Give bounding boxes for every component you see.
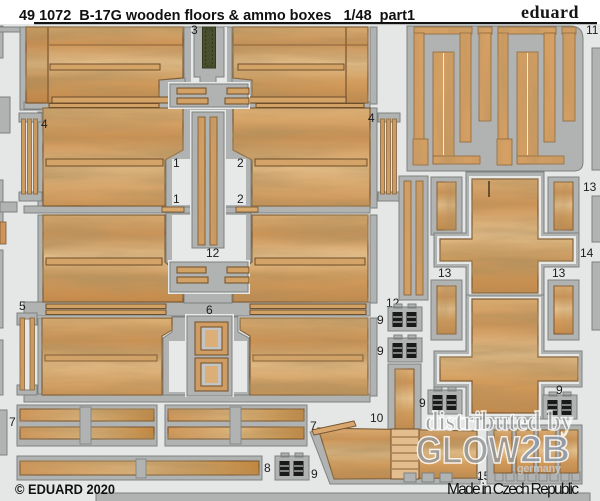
- svg-text:7: 7: [9, 415, 16, 429]
- svg-text:12: 12: [206, 246, 220, 260]
- svg-text:14: 14: [580, 246, 594, 260]
- svg-text:13: 13: [583, 180, 597, 194]
- svg-text:1: 1: [173, 192, 180, 206]
- svg-text:2: 2: [237, 192, 244, 206]
- svg-text:4: 4: [368, 111, 375, 125]
- svg-text:eduard: eduard: [521, 2, 579, 22]
- svg-text:10: 10: [370, 411, 384, 425]
- svg-text:13: 13: [552, 266, 566, 280]
- svg-text:9: 9: [311, 467, 318, 481]
- svg-text:8: 8: [264, 461, 271, 475]
- svg-text:9: 9: [556, 383, 563, 397]
- svg-text:© EDUARD 2020: © EDUARD 2020: [15, 481, 115, 497]
- svg-text:GLOW: GLOW: [416, 430, 520, 472]
- svg-text:13: 13: [438, 266, 452, 280]
- svg-text:2: 2: [237, 156, 244, 170]
- svg-text:germany: germany: [517, 463, 562, 475]
- svg-text:7: 7: [310, 419, 317, 433]
- svg-text:3: 3: [191, 23, 198, 37]
- svg-text:5: 5: [19, 299, 26, 313]
- svg-text:1: 1: [173, 156, 180, 170]
- svg-text:4: 4: [41, 117, 48, 131]
- svg-text:9: 9: [377, 344, 384, 358]
- svg-text:9: 9: [377, 313, 384, 327]
- svg-text:49 1072 B-17G wooden floors &: 49 1072 B-17G wooden floors & ammo boxes…: [19, 8, 415, 24]
- svg-text:11: 11: [586, 23, 599, 37]
- svg-text:Made in Czech Republic: Made in Czech Republic: [447, 481, 579, 498]
